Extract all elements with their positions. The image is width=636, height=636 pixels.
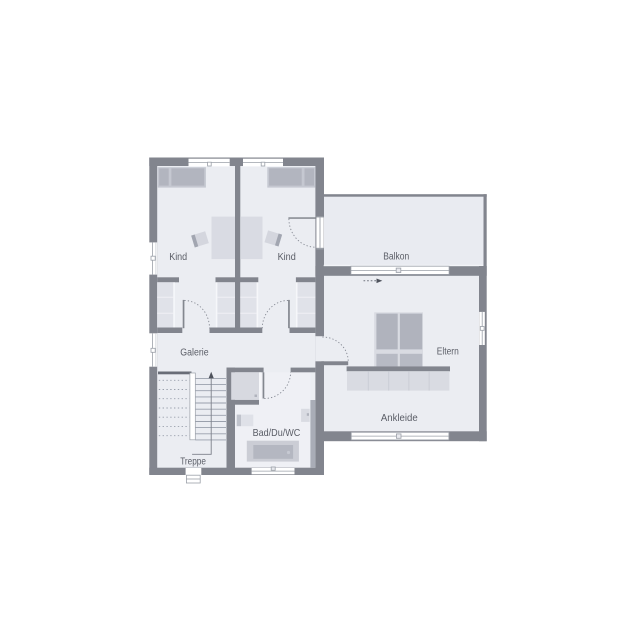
svg-text:Ankleide: Ankleide — [381, 412, 418, 424]
svg-text:Balkon: Balkon — [383, 250, 409, 262]
svg-text:Kind: Kind — [169, 251, 187, 263]
svg-text:Bad/Du/WC: Bad/Du/WC — [253, 427, 301, 439]
svg-text:Kind: Kind — [278, 251, 296, 263]
svg-text:Eltern: Eltern — [437, 346, 459, 358]
svg-text:Treppe: Treppe — [180, 456, 206, 468]
svg-text:Galerie: Galerie — [180, 347, 208, 359]
